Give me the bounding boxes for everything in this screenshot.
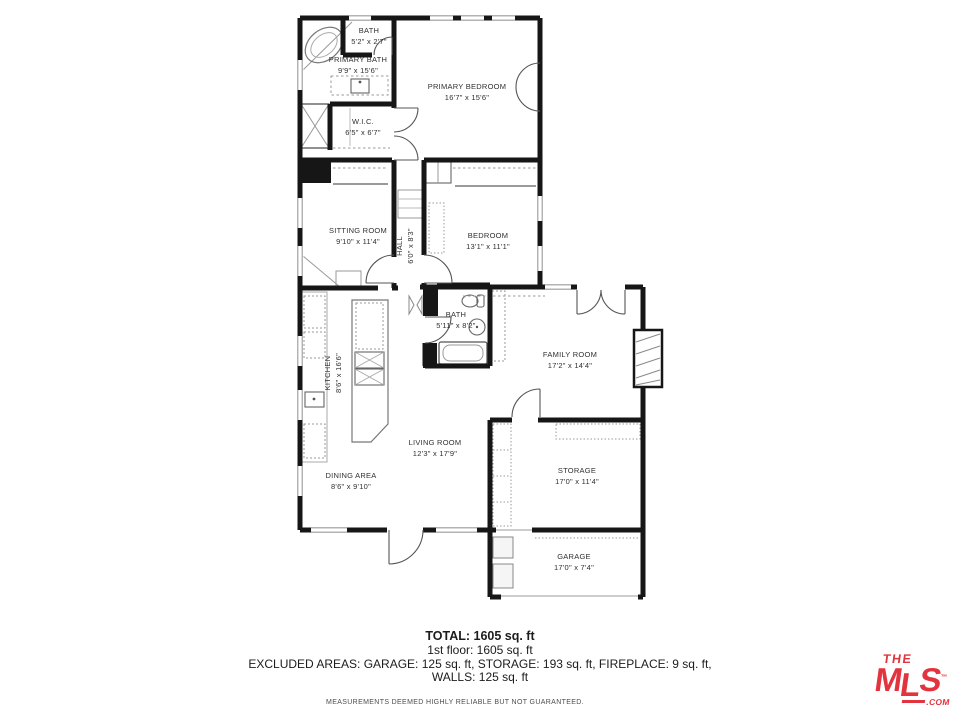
walls-area-text: WALLS: 125 sq. ft	[0, 671, 960, 685]
logo-mls-text: MLS™	[873, 667, 957, 693]
room-label-bath-top: BATH5'2" x 2'7"	[351, 25, 387, 48]
room-label-sitting-room: SITTING ROOM9'10" x 11'4"	[329, 225, 387, 248]
excluded-areas-text: EXCLUDED AREAS: GARAGE: 125 sq. ft, STOR…	[0, 658, 960, 672]
room-label-family-room: FAMILY ROOM17'2" x 14'4"	[543, 349, 597, 372]
room-label-storage: STORAGE17'0" x 11'4"	[555, 465, 599, 488]
total-area-text: TOTAL: 1605 sq. ft	[0, 630, 960, 644]
logo-com-text: .COM	[926, 697, 951, 707]
floor-plan-page: BATH5'2" x 2'7" PRIMARY BATH9'9" x 15'6"…	[0, 0, 960, 720]
fireplace	[634, 330, 662, 387]
room-label-kitchen: KITCHEN8'6" x 16'6"	[322, 353, 345, 393]
room-label-bath-mid: BATH5'11" x 8'2"	[436, 309, 475, 332]
trademark-symbol: ™	[940, 674, 946, 681]
area-summary: TOTAL: 1605 sq. ft 1st floor: 1605 sq. f…	[0, 630, 960, 685]
first-floor-area-text: 1st floor: 1605 sq. ft	[0, 644, 960, 658]
floor-plan-drawing	[0, 0, 960, 720]
room-label-wic: W.I.C.6'5" x 6'7"	[345, 116, 381, 139]
room-label-living-room: LIVING ROOM12'3" x 17'9"	[409, 437, 462, 460]
room-label-hall: HALL6'0" x 8'3"	[394, 228, 417, 264]
the-mls-logo: THE MLS™ .COM	[875, 652, 955, 716]
room-label-primary-bedroom: PRIMARY BEDROOM16'7" x 15'6"	[428, 81, 507, 104]
room-label-bedroom: BEDROOM13'1" x 11'1"	[466, 230, 510, 253]
disclaimer-text: MEASUREMENTS DEEMED HIGHLY RELIABLE BUT …	[0, 699, 935, 706]
room-label-dining-area: DINING AREA8'6" x 9'10"	[325, 470, 376, 493]
room-label-primary-bath: PRIMARY BATH9'9" x 15'6"	[329, 54, 387, 77]
room-label-garage: GARAGE17'0" x 7'4"	[554, 551, 594, 574]
logo-underline-bar	[901, 700, 924, 704]
